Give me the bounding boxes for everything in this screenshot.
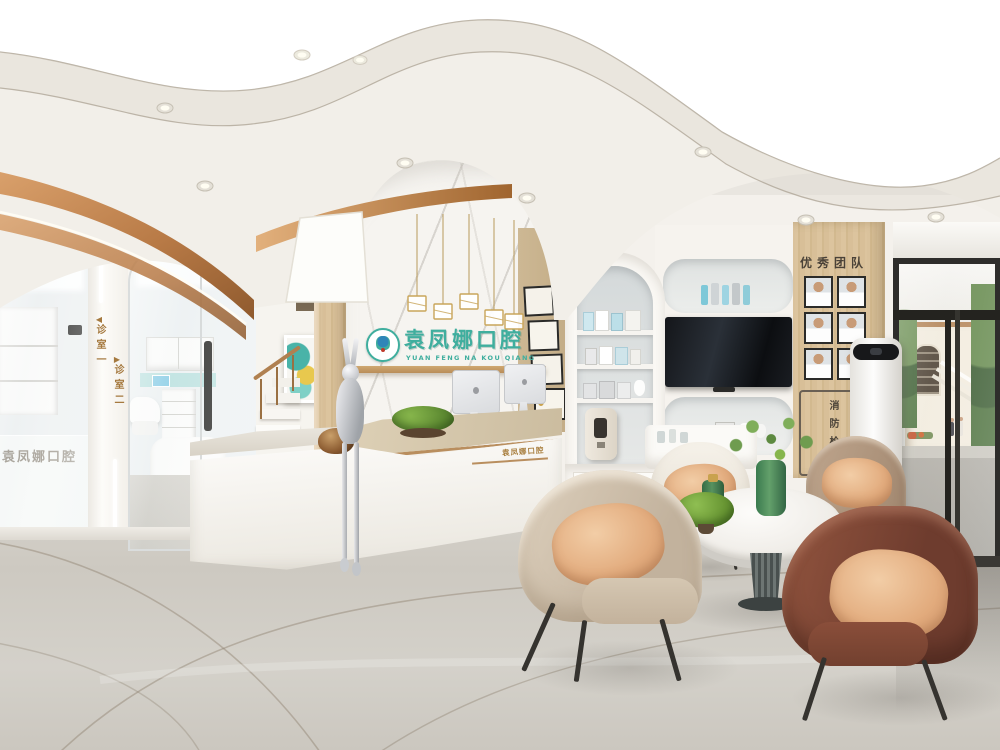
- ac-display: [870, 348, 882, 355]
- product-bottle: [701, 285, 708, 305]
- tv-stand: [713, 387, 735, 392]
- room1-arrow-icon: ◀: [92, 315, 106, 324]
- product-box: [599, 381, 615, 399]
- armchair-maroon: [782, 506, 992, 724]
- doctor-photo: [804, 312, 833, 344]
- arch-opening: [577, 266, 653, 464]
- desk-front-panel: [190, 438, 562, 578]
- led-strip-top: [99, 241, 103, 303]
- tv-screen: [665, 317, 792, 387]
- chair-leg: [521, 602, 556, 672]
- chair-leg: [659, 619, 681, 682]
- product-bottle: [722, 285, 729, 305]
- doctor-photo: [837, 276, 866, 308]
- entrance-header-beam: [893, 222, 1000, 260]
- dispenser-spout: [597, 442, 605, 448]
- product-box: [625, 310, 641, 331]
- apple-logo-icon: [473, 387, 479, 394]
- room2-label: 诊室二: [110, 364, 125, 409]
- certificate-frame: [523, 285, 555, 317]
- room1-label: 诊室一: [92, 324, 107, 369]
- chair-leg: [802, 657, 827, 721]
- sign-room1: ◀ 诊室一: [92, 315, 106, 411]
- sign-room2: ▶ 诊室二: [110, 355, 124, 455]
- rabbit-foot: [340, 558, 349, 572]
- chair-leg: [574, 620, 588, 682]
- reception-desk: 袁凤娜口腔: [190, 330, 570, 585]
- rabbit-sculpture: [322, 338, 372, 574]
- product-box: [595, 310, 609, 331]
- rabbit-leg: [354, 442, 359, 564]
- armchair-beige: [518, 470, 713, 682]
- product-box: [630, 349, 641, 365]
- led-strip-bottom: [113, 459, 117, 531]
- product-bottle: [743, 285, 750, 305]
- corridor-soffit: [256, 195, 298, 275]
- product-bottle: [711, 283, 719, 305]
- product-box: [583, 312, 594, 331]
- product-box: [585, 348, 597, 365]
- product-box: [617, 382, 631, 399]
- apple-logo-icon: [522, 379, 527, 385]
- chair-seat-cushion: [582, 578, 698, 624]
- rabbit-leg: [342, 442, 347, 560]
- tv-upper-niche: [663, 259, 793, 313]
- product-box: [611, 313, 623, 331]
- product-box: [615, 347, 628, 365]
- ceiling-luminous-panel: [0, 0, 1000, 187]
- room1-glass-sheen: [0, 235, 88, 527]
- doctor-photo: [804, 276, 833, 308]
- dispenser-panel: [594, 418, 607, 438]
- imac-computer: [452, 370, 500, 414]
- team-title: 优秀团队: [800, 254, 884, 271]
- doctor-photo: [804, 348, 833, 380]
- product-box: [583, 383, 597, 399]
- room2-arrow-icon: ▶: [110, 355, 124, 364]
- water-dispenser: [585, 408, 617, 460]
- tooth-model: [634, 380, 645, 396]
- imac-computer: [504, 364, 546, 404]
- product-bottle: [732, 283, 740, 305]
- chair-leg: [921, 659, 948, 721]
- rabbit-foot: [352, 562, 361, 576]
- product-box: [599, 346, 613, 365]
- sign-pillar: ◀ 诊室一 ▶ 诊室二: [88, 231, 128, 540]
- room1-glass-panel: 袁凤娜口腔: [0, 235, 90, 527]
- moss-bowl-base: [400, 428, 446, 438]
- clinic-panorama: 袁凤娜口腔 ◀ 诊室一 ▶ 诊室二: [0, 0, 1000, 750]
- moss-bowl: [392, 406, 454, 440]
- rabbit-body: [336, 378, 364, 444]
